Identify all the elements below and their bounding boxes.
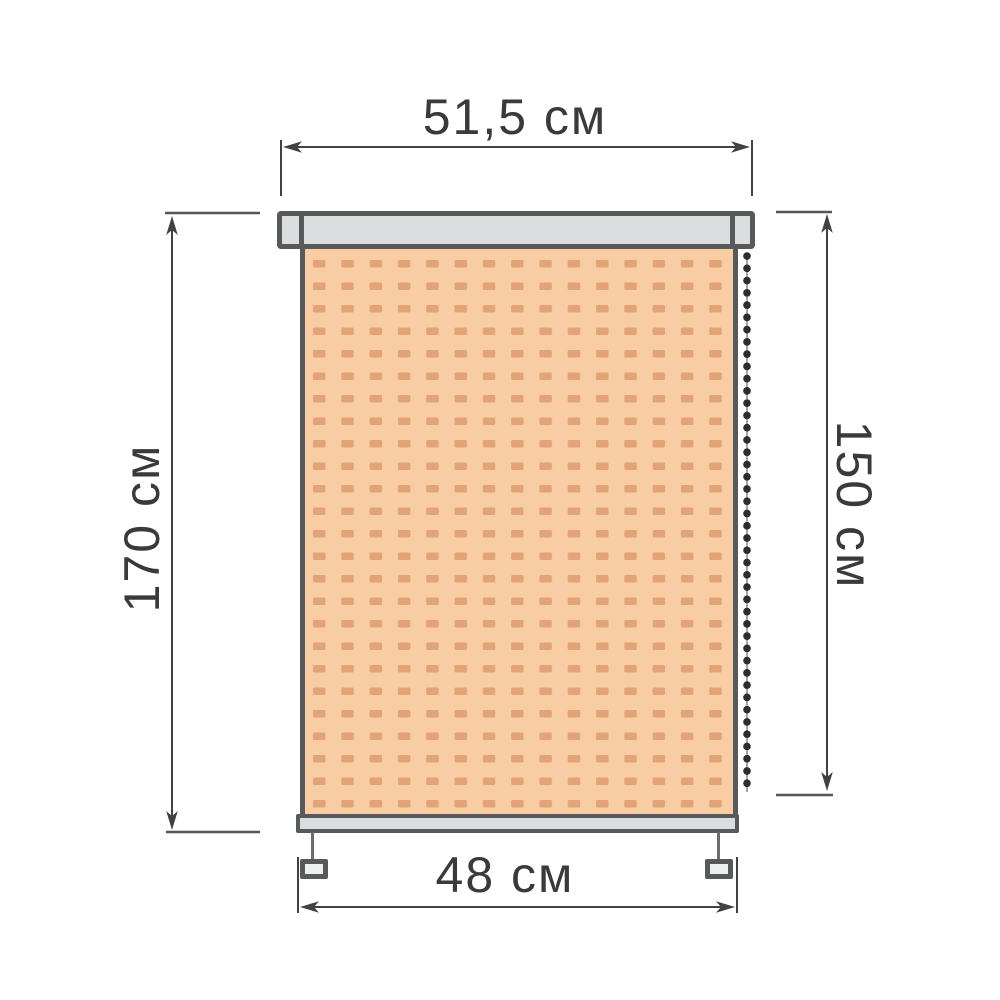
header-rail [277, 211, 755, 249]
cassette-width-label: 51,5 см [423, 88, 608, 146]
fabric-panel [300, 249, 738, 815]
bottom-bar [296, 814, 739, 833]
rail-end-cap-left [299, 215, 304, 245]
rail-end-cap-right [730, 215, 735, 245]
fabric-pattern [305, 249, 733, 815]
total-height-dimension [165, 213, 260, 832]
mounting-bracket-right [705, 859, 733, 879]
bracket-connector-left [311, 832, 314, 861]
mounting-bracket-left [300, 859, 328, 879]
total-height-label: 170 см [113, 444, 171, 613]
cassette-width-dimension [281, 140, 752, 196]
bracket-connector-right [717, 832, 720, 861]
diagram-canvas: 51,5 см 170 см 150 см 48 см [0, 0, 1000, 1000]
fabric-height-label: 150 см [825, 421, 883, 590]
fabric-width-label: 48 см [436, 846, 575, 904]
